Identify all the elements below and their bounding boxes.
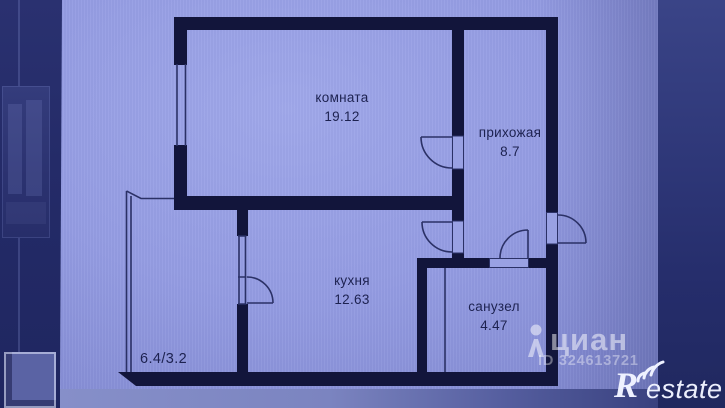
floorplan-photo: комната 19.12 прихожая 8.7 кухня 12.63 с… [0,0,725,408]
room-area: 12.63 [292,290,412,309]
room-name: прихожая [450,123,570,142]
door-opening-entrance [547,213,558,245]
balcony-area-label: 6.4/3.2 [140,351,187,367]
wall-right-upper [546,17,558,213]
wall-bottom [118,372,558,386]
restate-watermark: R estate [610,361,725,408]
wall-bathroom-left [417,258,427,374]
room-label-prihozhaya: прихожая 8.7 [450,123,570,161]
wall-hall-divider-upper [452,30,464,137]
restate-logo-text: estate [646,374,723,404]
door-arc-entrance [558,215,586,243]
room-name: комната [272,88,412,107]
door-opening-kitchen [453,221,464,253]
door-opening-bathroom [490,259,529,268]
wall-left-upper [174,17,187,65]
room-label-komnata: комната 19.12 [272,88,412,126]
wall-left-lower [174,145,187,198]
wall-top [174,17,558,30]
room-area: 19.12 [272,107,412,126]
cian-logo-text: циан [550,323,628,357]
wall-balcony-block-upper [237,210,248,236]
door-arc-room [421,137,452,168]
balcony-bevel [127,191,175,199]
room-area: 8.7 [450,142,570,161]
door-arc-balcony [247,277,273,303]
door-arc-bathroom [500,230,528,258]
wall-hall-divider-mid [452,168,464,222]
wall-bathroom-top-right [528,258,546,268]
restate-logo-r: R [614,367,638,403]
wall-room-kitchen [174,196,464,210]
room-name: кухня [292,271,412,290]
door-arc-kitchen [422,222,452,252]
wall-bathroom-top-left [417,258,490,268]
wall-balcony-block-lower [237,304,248,372]
room-label-kuhnya: кухня 12.63 [292,271,412,309]
room-name: санузел [434,297,554,316]
